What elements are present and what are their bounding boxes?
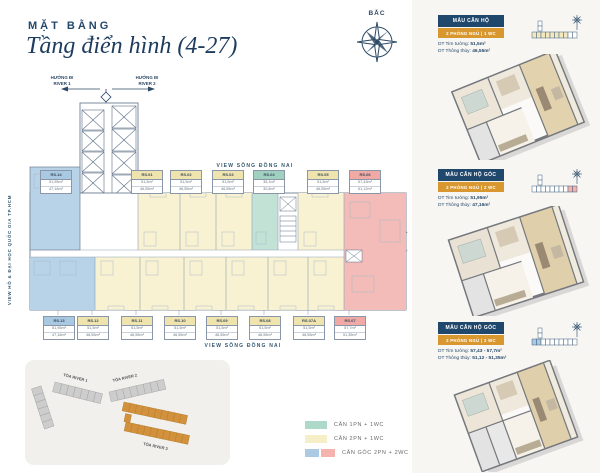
unit-tag: RS.11 51,5m² 46,55m² bbox=[121, 316, 153, 340]
unit-tag: RS.05 51,5m² 46,55m² bbox=[307, 170, 339, 194]
card2-header: MẪU CĂN HỘ GÓC 2 PHÒNG NGỦ | 2 WC DT Tim… bbox=[438, 169, 504, 209]
compass-north-label: BẮC bbox=[352, 10, 402, 17]
card2-subtitle: 2 PHÒNG NGỦ | 2 WC bbox=[438, 182, 504, 192]
view-label-top: VIEW SÔNG ĐỒNG NAI bbox=[217, 161, 294, 169]
page-kicker: MẶT BẰNG bbox=[28, 20, 111, 32]
card3-header: MẪU CĂN HỘ GÓC 2 PHÒNG NGỦ | 2 WC DT Tim… bbox=[438, 322, 504, 362]
unit-tag: RS.14 51,95m² 47,16m² bbox=[40, 170, 72, 194]
direction-left-line1: HƯỚNG ĐI bbox=[51, 75, 74, 80]
unit-blue-bottom bbox=[30, 257, 95, 310]
unit-tag: RS.10 51,5m² 46,55m² bbox=[164, 316, 196, 340]
tower3-label: TÒA RIVER 3 bbox=[143, 441, 169, 451]
card1-header: MẪU CĂN HỘ 2 PHÒNG NGỦ | 1 WC DT Tim tườ… bbox=[438, 15, 504, 55]
direction-right-line2: RIVER 2 bbox=[138, 81, 156, 86]
unit-tag: RS.09 51,5m² 46,55m² bbox=[206, 316, 238, 340]
card1-subtitle: 2 PHÒNG NGỦ | 1 WC bbox=[438, 28, 504, 38]
compass: BẮC bbox=[352, 10, 402, 68]
units-yellow-top bbox=[138, 193, 252, 250]
unit-tag: RS.07 57,7m² 51,35m² bbox=[334, 316, 366, 340]
unit-tag: RS.08 51,5m² 46,55m² bbox=[249, 316, 281, 340]
card2-3d-floorplan bbox=[430, 206, 600, 316]
site-map-drawing: TÒA RIVER 1 TÒA RIVER 2 bbox=[25, 360, 230, 465]
legend-row-2pn: CĂN 2PN + 1WC bbox=[305, 432, 409, 446]
card2-title: MẪU CĂN HỘ GÓC bbox=[438, 169, 504, 181]
page-title: Tầng điển hình (4-27) bbox=[26, 33, 237, 60]
unit-tag: RS.04 35,1m² 30,8m² bbox=[253, 170, 285, 194]
tower1-label: TÒA RIVER 1 bbox=[63, 372, 89, 383]
legend-swatch-yellow bbox=[305, 435, 327, 443]
card1-3d-floorplan bbox=[438, 54, 598, 160]
arrow-right-head bbox=[148, 87, 155, 92]
tower-river-3: TÒA RIVER 3 bbox=[120, 402, 190, 451]
legend-swatch-blue bbox=[305, 449, 319, 457]
direction-river-arrows: HƯỚNG ĐI RIVER 1 HƯỚNG ĐI RIVER 2 bbox=[51, 75, 159, 104]
card3-subtitle: 2 PHÒNG NGỦ | 2 WC bbox=[438, 335, 504, 345]
junction-diamond bbox=[101, 92, 111, 102]
compass-rose-icon bbox=[352, 17, 402, 67]
unit-yellow-top2 bbox=[298, 193, 344, 250]
tower-river-1: TÒA RIVER 1 bbox=[31, 372, 102, 429]
card1-compass-icon bbox=[570, 14, 584, 32]
tag-leaders bbox=[58, 310, 349, 315]
unit-tag: RS.02 51,5m² 46,55m² bbox=[170, 170, 202, 194]
unit-tag: RS.06 57,43m² 51,12m² bbox=[349, 170, 381, 194]
tower2-label: TÒA RIVER 2 bbox=[112, 372, 138, 383]
card3-title: MẪU CĂN HỘ GÓC bbox=[438, 322, 504, 334]
card1-title: MẪU CĂN HỘ bbox=[438, 15, 504, 27]
unit-tag: RS.03 51,5m² 46,55m² bbox=[212, 170, 244, 194]
card3-compass-icon bbox=[570, 321, 584, 339]
unit-tag: RS.13 51,95m² 47,16m² bbox=[43, 316, 75, 340]
legend-row-corner: CĂN GÓC 2PN + 2WC bbox=[305, 446, 409, 460]
legend: CĂN 1PN + 1WC CĂN 2PN + 1WC CĂN GÓC 2PN … bbox=[305, 418, 409, 460]
card2-compass-icon bbox=[570, 168, 584, 186]
unit-tag: RS.07A 51,5m² 46,55m² bbox=[293, 316, 325, 340]
arrow-left-head bbox=[61, 87, 68, 92]
legend-swatch-pink bbox=[321, 449, 335, 457]
legend-swatch-teal bbox=[305, 421, 327, 429]
brochure-page: MẶT BẰNG Tầng điển hình (4-27) BẮC HƯỚNG… bbox=[0, 0, 600, 473]
units-yellow-bottom bbox=[95, 257, 344, 310]
unit-tag: RS.01 51,5m² 46,55m² bbox=[131, 170, 163, 194]
direction-left-line2: RIVER 1 bbox=[53, 81, 71, 86]
unit-tag: RS.12 51,5m² 46,55m² bbox=[77, 316, 109, 340]
card3-3d-floorplan bbox=[432, 360, 600, 472]
direction-right-line1: HƯỚNG ĐI bbox=[136, 75, 159, 80]
card1-areas: DT Tim tường: 51,5m² DT Thông thủy: 46,5… bbox=[438, 41, 504, 55]
legend-row-1pn: CĂN 1PN + 1WC bbox=[305, 418, 409, 432]
view-label-left: VIEW HỒ & ĐẠI HỌC QUỐC GIA TP.HCM bbox=[7, 195, 12, 305]
tower-river-2: TÒA RIVER 2 bbox=[109, 372, 166, 401]
site-map-inset: TÒA RIVER 1 TÒA RIVER 2 bbox=[25, 360, 230, 465]
pink-unit-shaft bbox=[346, 250, 362, 262]
view-label-bottom: VIEW SÔNG ĐỒNG NAI bbox=[205, 341, 282, 349]
